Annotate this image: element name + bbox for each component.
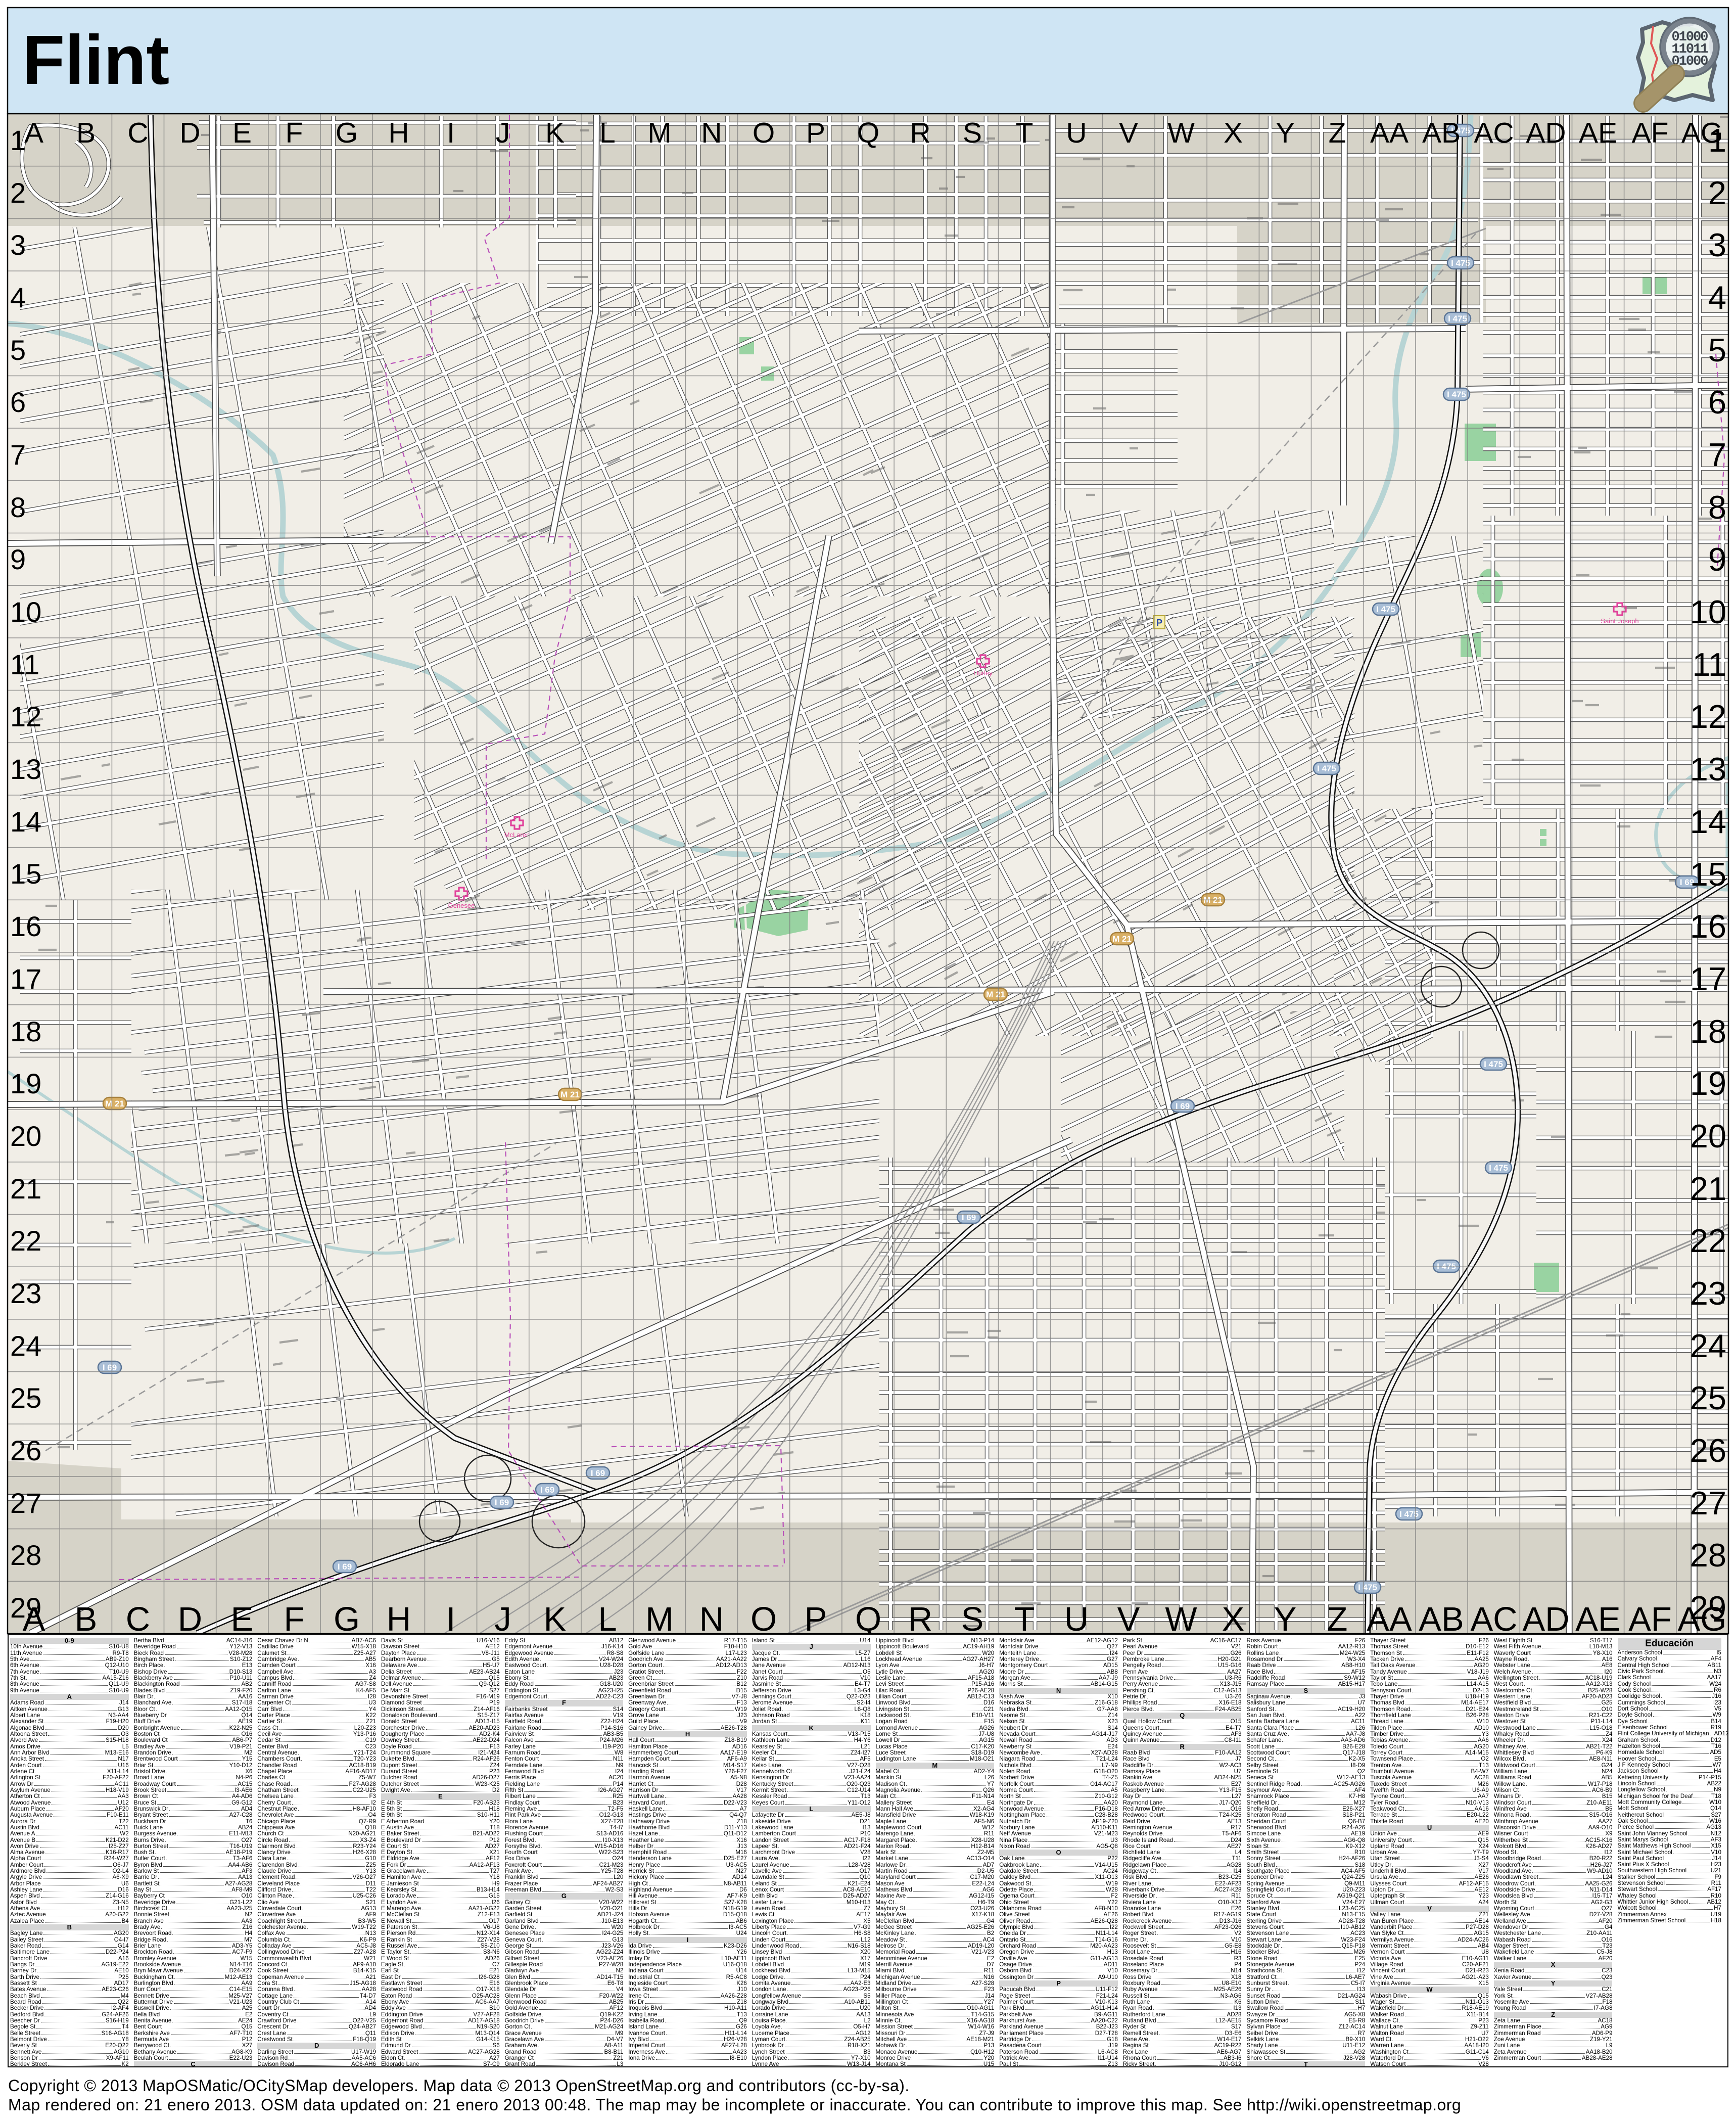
svg-text:8: 8 <box>1708 489 1726 526</box>
svg-text:B: B <box>75 1600 98 1638</box>
svg-text:AE: AE <box>1575 1600 1620 1638</box>
svg-text:24: 24 <box>10 1330 41 1362</box>
svg-text:23: 23 <box>10 1277 41 1309</box>
svg-text:McLaren: McLaren <box>504 831 530 839</box>
svg-text:M 21: M 21 <box>1112 934 1132 944</box>
svg-text:P: P <box>1156 618 1162 628</box>
svg-text:AD: AD <box>1526 117 1566 149</box>
svg-text:21: 21 <box>1690 1170 1726 1207</box>
svg-text:9: 9 <box>10 543 26 575</box>
svg-text:10: 10 <box>1690 593 1726 630</box>
svg-text:1: 1 <box>10 124 26 156</box>
svg-text:E: E <box>232 117 252 149</box>
svg-text:U: U <box>1064 1600 1089 1638</box>
svg-text:10: 10 <box>10 596 41 628</box>
svg-text:4: 4 <box>1708 279 1726 316</box>
svg-text:Y: Y <box>1276 117 1295 149</box>
svg-text:16: 16 <box>10 910 41 942</box>
svg-text:AD: AD <box>1522 1600 1569 1638</box>
svg-text:27: 27 <box>10 1487 41 1519</box>
svg-text:I 69: I 69 <box>540 1485 554 1495</box>
svg-text:Flint: Flint <box>22 21 169 99</box>
svg-text:G: G <box>334 1600 360 1638</box>
svg-text:D: D <box>179 117 200 149</box>
svg-text:20: 20 <box>1690 1118 1726 1155</box>
svg-text:I 69: I 69 <box>103 1363 117 1372</box>
svg-text:U: U <box>1066 117 1087 149</box>
svg-text:29: 29 <box>1690 1589 1726 1626</box>
svg-text:9: 9 <box>1708 541 1726 578</box>
svg-text:W: W <box>1165 1600 1197 1638</box>
svg-text:1: 1 <box>1708 122 1726 159</box>
svg-text:Saint Joseph: Saint Joseph <box>1601 617 1638 625</box>
svg-text:AC: AC <box>1470 1600 1517 1638</box>
svg-text:26: 26 <box>1690 1432 1726 1469</box>
svg-text:N: N <box>701 117 722 149</box>
svg-text:3: 3 <box>10 229 26 261</box>
svg-text:AA: AA <box>1367 1600 1412 1638</box>
svg-text:12: 12 <box>10 701 41 732</box>
svg-text:G: G <box>336 117 358 149</box>
svg-text:11: 11 <box>10 649 39 680</box>
svg-text:F: F <box>286 117 303 149</box>
svg-text:17: 17 <box>10 963 41 995</box>
svg-text:I: I <box>446 1600 456 1638</box>
svg-text:M: M <box>645 1600 674 1638</box>
svg-text:16: 16 <box>1690 908 1726 945</box>
svg-text:D: D <box>178 1600 202 1638</box>
svg-text:28: 28 <box>1690 1537 1726 1574</box>
svg-text:C: C <box>126 1600 150 1638</box>
svg-text:AB: AB <box>1422 117 1461 149</box>
svg-text:J: J <box>496 117 510 149</box>
svg-text:Z: Z <box>1329 117 1346 149</box>
svg-text:23: 23 <box>1690 1275 1726 1312</box>
svg-text:W: W <box>1167 117 1195 149</box>
svg-text:17: 17 <box>1690 960 1726 997</box>
svg-text:I 475: I 475 <box>1484 1059 1503 1069</box>
svg-text:X: X <box>1224 117 1243 149</box>
svg-text:AB: AB <box>1419 1600 1464 1638</box>
svg-text:K: K <box>545 117 565 149</box>
svg-text:14: 14 <box>1690 803 1726 840</box>
svg-text:AC: AC <box>1474 117 1514 149</box>
svg-text:Hurley: Hurley <box>973 669 993 677</box>
svg-text:5: 5 <box>1708 332 1726 368</box>
svg-text:Q: Q <box>855 1600 881 1638</box>
svg-text:4: 4 <box>10 282 26 313</box>
svg-text:M 21: M 21 <box>105 1099 124 1109</box>
svg-text:M: M <box>647 117 671 149</box>
svg-text:S: S <box>963 117 982 149</box>
svg-text:R: R <box>908 1600 932 1638</box>
svg-text:18: 18 <box>10 1016 41 1047</box>
svg-text:11: 11 <box>1693 646 1726 683</box>
svg-text:15: 15 <box>1690 856 1726 893</box>
svg-text:L: L <box>598 1600 617 1638</box>
svg-text:13: 13 <box>1690 751 1726 788</box>
svg-text:L: L <box>599 117 616 149</box>
svg-text:AE: AE <box>1579 117 1617 149</box>
svg-text:I 69: I 69 <box>338 1562 352 1572</box>
svg-text:E: E <box>231 1600 254 1638</box>
svg-text:2: 2 <box>10 177 26 209</box>
svg-text:V: V <box>1119 117 1138 149</box>
svg-text:C: C <box>127 117 148 149</box>
svg-text:O: O <box>750 1600 777 1638</box>
svg-text:I 475: I 475 <box>1447 390 1466 399</box>
svg-text:3: 3 <box>1708 226 1726 263</box>
svg-text:19: 19 <box>10 1068 41 1099</box>
svg-text:AA: AA <box>1370 117 1409 149</box>
svg-text:24: 24 <box>1690 1327 1726 1364</box>
svg-text:H: H <box>387 1600 411 1638</box>
svg-text:I 475: I 475 <box>1317 764 1336 773</box>
svg-text:Genesee: Genesee <box>448 902 475 909</box>
svg-text:6: 6 <box>10 386 26 418</box>
svg-text:7: 7 <box>10 439 26 471</box>
svg-text:8: 8 <box>10 491 26 523</box>
svg-text:I 475: I 475 <box>1376 605 1395 614</box>
svg-text:28: 28 <box>10 1539 41 1571</box>
svg-text:M 21: M 21 <box>986 990 1005 999</box>
svg-text:18: 18 <box>1690 1013 1726 1050</box>
svg-text:Z: Z <box>1327 1600 1348 1638</box>
svg-text:K: K <box>544 1600 567 1638</box>
svg-text:7: 7 <box>1708 436 1726 473</box>
svg-text:27: 27 <box>1690 1485 1726 1521</box>
svg-text:21: 21 <box>10 1173 41 1205</box>
svg-text:26: 26 <box>10 1435 41 1466</box>
svg-text:22: 22 <box>1690 1222 1726 1259</box>
svg-text:R: R <box>910 117 930 149</box>
svg-text:B: B <box>76 117 96 149</box>
svg-text:25: 25 <box>10 1382 41 1414</box>
svg-text:M 21: M 21 <box>560 1090 580 1099</box>
svg-text:I 475: I 475 <box>1451 258 1470 268</box>
svg-text:Y: Y <box>1274 1600 1297 1638</box>
svg-text:29: 29 <box>10 1592 41 1624</box>
svg-text:I 475: I 475 <box>1489 1163 1508 1173</box>
svg-text:J: J <box>494 1600 511 1638</box>
svg-text:P: P <box>805 1600 827 1638</box>
svg-text:T: T <box>1014 1600 1035 1638</box>
svg-text:13: 13 <box>10 753 41 785</box>
svg-text:H: H <box>388 117 409 149</box>
svg-text:25: 25 <box>1690 1379 1726 1416</box>
svg-text:20: 20 <box>10 1120 41 1152</box>
svg-text:22: 22 <box>10 1225 41 1257</box>
svg-text:AF: AF <box>1628 1600 1672 1638</box>
svg-text:I 475: I 475 <box>1358 1583 1377 1592</box>
svg-text:Q: Q <box>857 117 879 149</box>
svg-text:O: O <box>753 117 775 149</box>
svg-text:19: 19 <box>1690 1065 1726 1102</box>
svg-text:T: T <box>1016 117 1034 149</box>
svg-text:A: A <box>24 117 43 149</box>
svg-text:14: 14 <box>10 806 41 838</box>
svg-text:X: X <box>1222 1600 1245 1638</box>
svg-text:F: F <box>284 1600 305 1638</box>
svg-text:12: 12 <box>1690 698 1726 735</box>
svg-text:6: 6 <box>1708 384 1726 421</box>
svg-text:2: 2 <box>1708 174 1726 211</box>
svg-text:5: 5 <box>10 334 26 366</box>
svg-text:I 69: I 69 <box>495 1498 509 1507</box>
svg-text:V: V <box>1117 1600 1140 1638</box>
svg-text:S: S <box>961 1600 984 1638</box>
svg-text:N: N <box>699 1600 724 1638</box>
svg-text:15: 15 <box>10 858 41 890</box>
svg-text:AF: AF <box>1632 117 1669 149</box>
svg-text:I 475: I 475 <box>1448 314 1467 324</box>
svg-text:P: P <box>806 117 825 149</box>
svg-text:I: I <box>447 117 455 149</box>
